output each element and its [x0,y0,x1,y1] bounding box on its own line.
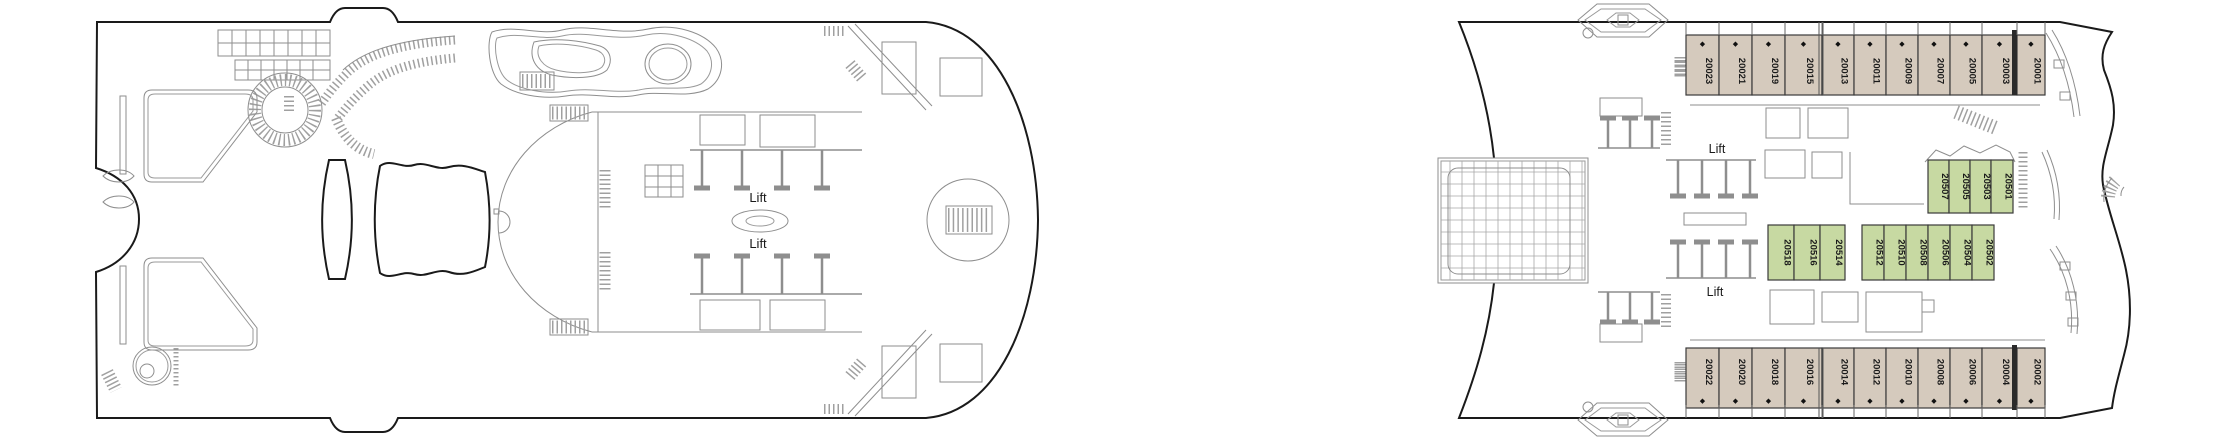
cabin-20008[interactable]: 20008◆ [1918,348,1950,408]
diamond-icon: ◆ [2028,398,2034,405]
diamond-icon: ◆ [1700,398,1706,405]
cabin-number: 20506 [1940,239,1951,265]
cabin-20015[interactable]: 20015◆ [1785,35,1822,95]
deck-plan-page: Lift Lift [0,0,2232,440]
diamond-icon: ◆ [1931,41,1937,48]
lens-structure [322,160,352,279]
cabin-number: 20510 [1896,239,1907,265]
cabin-20518[interactable]: 20518 [1768,225,1794,280]
cabin-number: 20008 [1935,359,1946,385]
cabin-number: 20516 [1808,239,1819,265]
cabin-20501[interactable]: 20501 [1991,160,2014,213]
cabin-20514[interactable]: 20514 [1820,225,1845,280]
cabin-number: 20020 [1736,359,1747,385]
cabin-20009[interactable]: 20009◆ [1886,35,1918,95]
cabin-number: 20001 [2032,58,2043,85]
diamond-icon: ◆ [1801,41,1807,48]
diamond-icon: ◆ [1899,41,1905,48]
cabin-20002[interactable]: 20002◆ [2017,348,2045,408]
lift-label: Lift [749,190,767,205]
cabin-number: 20018 [1769,359,1780,385]
cabin-20011[interactable]: 20011◆ [1854,35,1886,95]
cabin-20006[interactable]: 20006◆ [1950,348,1982,408]
cabin-number: 20505 [1960,173,1971,200]
diamond-icon: ◆ [1867,41,1873,48]
wavy-structure [375,163,490,276]
cabin-20005[interactable]: 20005◆ [1950,35,1982,95]
cabin-number: 20009 [1903,58,1914,84]
diamond-icon: ◆ [1997,398,2003,405]
cabin-20023[interactable]: 20023◆ [1686,35,1719,95]
diamond-icon: ◆ [2028,41,2034,48]
diamond-icon: ◆ [1899,398,1905,405]
cabin-20516[interactable]: 20516 [1794,225,1820,280]
cabin-number: 20003 [2000,58,2011,84]
cabin-number: 20512 [1874,239,1885,265]
cabin-20012[interactable]: 20012◆ [1854,348,1886,408]
left-ship-plan: Lift Lift [96,8,1038,432]
diamond-icon: ◆ [1963,41,1969,48]
diamond-icon: ◆ [1733,398,1739,405]
cabin-20506[interactable]: 20506 [1928,225,1951,280]
diamond-icon: ◆ [1931,398,1937,405]
diamond-icon: ◆ [1963,398,1969,405]
cabin-number: 20019 [1769,58,1780,84]
cabin-20512[interactable]: 20512 [1862,225,1885,280]
cabin-number: 20005 [1967,58,1978,85]
cabin-number: 20002 [2032,359,2043,385]
cabin-20022[interactable]: 20022◆ [1686,348,1719,408]
diamond-icon: ◆ [1766,398,1772,405]
cabin-number: 20501 [2003,173,2014,200]
cabin-number: 20508 [1918,239,1929,265]
cabin-number: 20016 [1804,359,1815,385]
cabin-20004[interactable]: 20004◆ [1982,348,2017,408]
cabin-number: 20013 [1839,58,1850,84]
cabin-number: 20014 [1839,359,1850,386]
cabin-20019[interactable]: 20019◆ [1752,35,1785,95]
diamond-icon: ◆ [1766,41,1772,48]
cabin-number: 20023 [1703,58,1714,84]
cabin-number: 20004 [2000,359,2011,386]
cabin-20016[interactable]: 20016◆ [1785,348,1822,408]
diamond-icon: ◆ [1700,41,1706,48]
lift-label: Lift [1707,285,1724,299]
cabin-20013[interactable]: 20013◆ [1822,35,1854,95]
cabin-20010[interactable]: 20010◆ [1886,348,1918,408]
cabin-20510[interactable]: 20510 [1884,225,1907,280]
cabin-number: 20504 [1962,239,1973,266]
cabin-20020[interactable]: 20020◆ [1719,348,1752,408]
cabin-20503[interactable]: 20503 [1970,160,1992,213]
cabin-20502[interactable]: 20502 [1972,225,1995,280]
glass-roof-grid [1438,158,1588,283]
diamond-icon: ◆ [1997,41,2003,48]
right-ship-plan: 20023◆20021◆20019◆20015◆20013◆20011◆2000… [1438,4,2130,436]
cabin-number: 20006 [1967,359,1978,385]
cabin-number: 20011 [1871,58,1882,85]
cabin-20507[interactable]: 20507 [1928,160,1950,213]
cabin-20007[interactable]: 20007◆ [1918,35,1950,95]
cabin-number: 20514 [1833,239,1844,266]
cabin-number: 20007 [1935,58,1946,84]
diamond-icon: ◆ [1835,398,1841,405]
cabin-20504[interactable]: 20504 [1950,225,1973,280]
cabin-number: 20502 [1984,239,1995,265]
diamond-icon: ◆ [1835,41,1841,48]
cabin-number: 20503 [1981,173,1992,199]
lift-label: Lift [749,236,767,251]
cabin-20505[interactable]: 20505 [1949,160,1971,213]
lift-label: Lift [1709,142,1726,156]
cabin-number: 20015 [1804,58,1815,85]
cabin-number: 20021 [1736,58,1747,85]
cabin-20508[interactable]: 20508 [1906,225,1929,280]
cabin-20021[interactable]: 20021◆ [1719,35,1752,95]
cabin-20014[interactable]: 20014◆ [1822,348,1854,408]
cabin-20018[interactable]: 20018◆ [1752,348,1785,408]
diamond-icon: ◆ [1867,398,1873,405]
diamond-icon: ◆ [1733,41,1739,48]
cabin-20001[interactable]: 20001◆ [2017,35,2045,95]
cabin-number: 20012 [1871,359,1882,385]
cabin-number: 20022 [1703,359,1714,385]
diamond-icon: ◆ [1801,398,1807,405]
cabin-number: 20507 [1939,173,1950,199]
cabin-number: 20518 [1782,239,1793,265]
cabin-number: 20010 [1903,359,1914,385]
cabin-20003[interactable]: 20003◆ [1982,35,2017,95]
